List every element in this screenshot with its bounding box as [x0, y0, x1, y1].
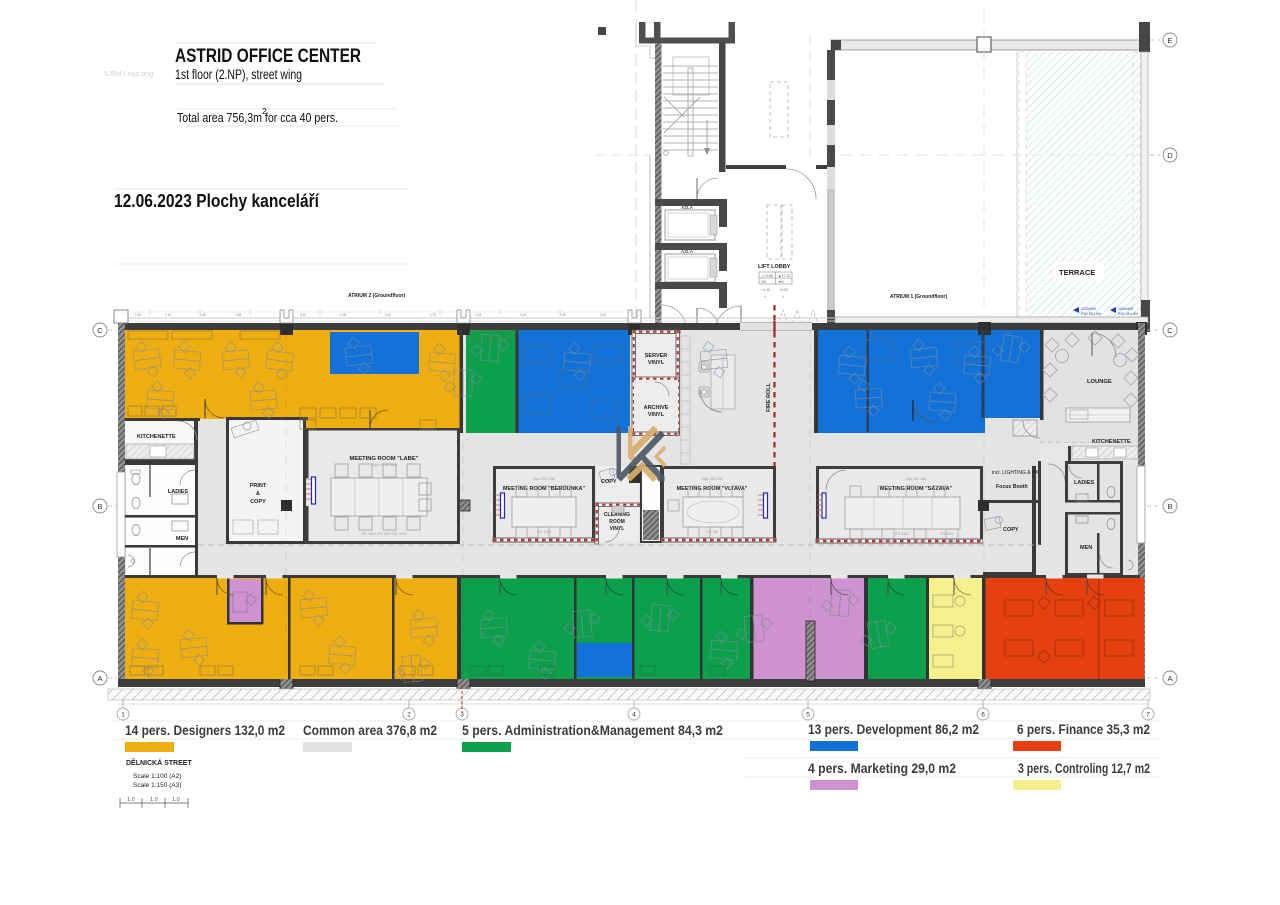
svg-text:Common area 376,8 m2: Common area 376,8 m2	[303, 723, 437, 738]
svg-text:LADIES: LADIES	[168, 489, 189, 495]
svg-text:9: 9	[782, 295, 784, 299]
svg-text:1.80: 1.80	[200, 313, 206, 317]
svg-text:COPY: COPY	[250, 499, 266, 505]
svg-text:incl. LIGHTING & PK: incl. LIGHTING & PK	[992, 470, 1039, 476]
svg-text:ASTRID OFFICE CENTER: ASTRID OFFICE CENTER	[175, 46, 361, 67]
svg-text:DĚLNICKÁ STREET: DĚLNICKÁ STREET	[126, 758, 192, 767]
svg-text:1.90: 1.90	[560, 313, 566, 317]
svg-text:△+2.80: △+2.80	[761, 274, 773, 278]
svg-text:STL 4404 STL 4404 STL 4404: STL 4404 STL 4404 STL 4404	[361, 532, 407, 536]
svg-text:COPY: COPY	[1003, 527, 1019, 533]
svg-text:VINYL: VINYL	[648, 412, 665, 418]
svg-text:AZLA: AZLA	[681, 249, 694, 254]
svg-text:▲+7.37: ▲+7.37	[778, 274, 791, 278]
svg-text:KITCHENETTE: KITCHENETTE	[137, 434, 176, 440]
svg-text:MEETING ROOM "LABE": MEETING ROOM "LABE"	[350, 456, 419, 462]
svg-text:D: D	[1167, 151, 1173, 160]
svg-text:1.35: 1.35	[340, 313, 346, 317]
svg-text:STL 4404: STL 4404	[537, 530, 551, 534]
svg-text:VINYL: VINYL	[648, 360, 665, 366]
svg-text:+4.15: +4.15	[761, 288, 770, 292]
svg-text:2.40: 2.40	[385, 313, 391, 317]
svg-text:PSK 28 x 90r: PSK 28 x 90r	[1118, 312, 1139, 316]
svg-text:4: 4	[632, 712, 636, 719]
svg-text:STL 156: STL 156	[706, 530, 718, 534]
svg-text:ARCHIVE: ARCHIVE	[644, 405, 669, 411]
svg-text:LOUNGE: LOUNGE	[1087, 379, 1112, 385]
svg-text:Scale 1:150 (A3): Scale 1:150 (A3)	[133, 782, 181, 789]
svg-text:1.70: 1.70	[430, 313, 436, 317]
svg-text:13 pers. Development 86,2 m2: 13 pers. Development 86,2 m2	[808, 722, 979, 737]
svg-text:7: 7	[1146, 712, 1150, 719]
svg-text:2.10: 2.10	[165, 313, 171, 317]
svg-text:ATRIUM 2 (Groundfloor): ATRIUM 2 (Groundfloor)	[348, 293, 405, 299]
svg-text:ATRIUM 1 (Groundfloor): ATRIUM 1 (Groundfloor)	[890, 294, 947, 300]
svg-text:ZfpL 156 12zi: ZfpL 156 12zi	[702, 477, 723, 481]
svg-text:1/9: 1/9	[761, 280, 766, 284]
svg-text:C: C	[1167, 326, 1173, 335]
svg-text:A: A	[1167, 674, 1172, 683]
svg-text:STL 4404: STL 4404	[895, 532, 909, 536]
svg-text:1200x900: 1200x900	[1081, 307, 1096, 311]
svg-text:1.0: 1.0	[150, 797, 158, 803]
svg-text:12.06.2023 Plochy kanceláří: 12.06.2023 Plochy kanceláří	[114, 191, 320, 211]
svg-text:PRINT: PRINT	[250, 483, 267, 489]
svg-text:TERRACE: TERRACE	[1059, 268, 1095, 277]
svg-text:1st floor (2.NP), street wing: 1st floor (2.NP), street wing	[175, 67, 302, 82]
svg-text:MEN: MEN	[176, 536, 188, 542]
svg-text:FIRE ROLL: FIRE ROLL	[766, 382, 772, 412]
svg-text:MEN: MEN	[1080, 545, 1092, 551]
svg-text:MEETING ROOM "BEROUNKA": MEETING ROOM "BEROUNKA"	[503, 486, 586, 492]
svg-text:6: 6	[981, 712, 985, 719]
svg-text:2.25: 2.25	[520, 313, 526, 317]
svg-text:Scale 1:100 (A2): Scale 1:100 (A2)	[133, 773, 181, 780]
svg-text:MEETING ROOM "VLTAVA": MEETING ROOM "VLTAVA"	[677, 486, 748, 492]
svg-text:B: B	[97, 502, 102, 511]
svg-text:5 pers. Administration&Managem: 5 pers. Administration&Management 84,3 m…	[462, 723, 723, 738]
svg-text:\UBM-Logo.png: \UBM-Logo.png	[104, 71, 153, 78]
svg-text:+4.00: +4.00	[779, 288, 788, 292]
svg-text:3: 3	[460, 712, 464, 719]
svg-text:5.20: 5.20	[300, 313, 306, 317]
svg-text:4 pers. Marketing 29,0 m2: 4 pers. Marketing 29,0 m2	[808, 761, 956, 776]
svg-text:1.0: 1.0	[127, 797, 135, 803]
svg-text:2: 2	[262, 106, 267, 116]
svg-text:ZfpL 494 16zi: ZfpL 494 16zi	[906, 477, 927, 481]
svg-text:LADIES: LADIES	[1074, 480, 1095, 486]
svg-text:COPY: COPY	[601, 479, 617, 485]
svg-text:ROOM: ROOM	[609, 519, 625, 525]
svg-text:▼0: ▼0	[778, 280, 784, 284]
svg-text:B: B	[1167, 502, 1172, 511]
svg-text:1.45: 1.45	[135, 313, 141, 317]
svg-text:1200x900: 1200x900	[1118, 307, 1133, 311]
svg-text:A: A	[97, 674, 102, 683]
svg-text:6 pers. Finance 35,3 m2: 6 pers. Finance 35,3 m2	[1017, 722, 1150, 737]
svg-text:&: &	[256, 491, 260, 497]
svg-text:2: 2	[407, 712, 411, 719]
svg-text:SERVER: SERVER	[645, 353, 668, 359]
svg-text:C: C	[97, 326, 103, 335]
svg-text:STL 4404: STL 4404	[940, 532, 954, 536]
svg-text:5: 5	[806, 712, 810, 719]
svg-text:9: 9	[764, 295, 766, 299]
svg-text:AZLA: AZLA	[681, 205, 694, 210]
svg-text:Focus Booth: Focus Booth	[996, 484, 1028, 490]
svg-text:3 pers. Controling 12,7 m2: 3 pers. Controling 12,7 m2	[1018, 761, 1150, 776]
svg-text:3.15: 3.15	[475, 313, 481, 317]
svg-text:KITCHENETTE: KITCHENETTE	[1092, 439, 1131, 445]
svg-text:14 pers. Designers 132,0 m2: 14 pers. Designers 132,0 m2	[125, 723, 285, 738]
svg-text:PSK 28 x 90r: PSK 28 x 90r	[1081, 312, 1102, 316]
svg-text:VINYL: VINYL	[610, 526, 625, 532]
svg-text:ZfpL 479x 13zi: ZfpL 479x 13zi	[533, 477, 555, 481]
svg-text:Total area 756,3m for cca 40: Total area 756,3m for cca 40 pers.	[177, 110, 338, 125]
svg-text:LIFT LOBBY: LIFT LOBBY	[758, 264, 791, 270]
svg-text:2.60: 2.60	[600, 313, 606, 317]
svg-text:1.0: 1.0	[172, 797, 180, 803]
svg-text:E: E	[1167, 36, 1172, 45]
svg-text:1: 1	[121, 712, 125, 719]
svg-text:2.45: 2.45	[235, 313, 241, 317]
